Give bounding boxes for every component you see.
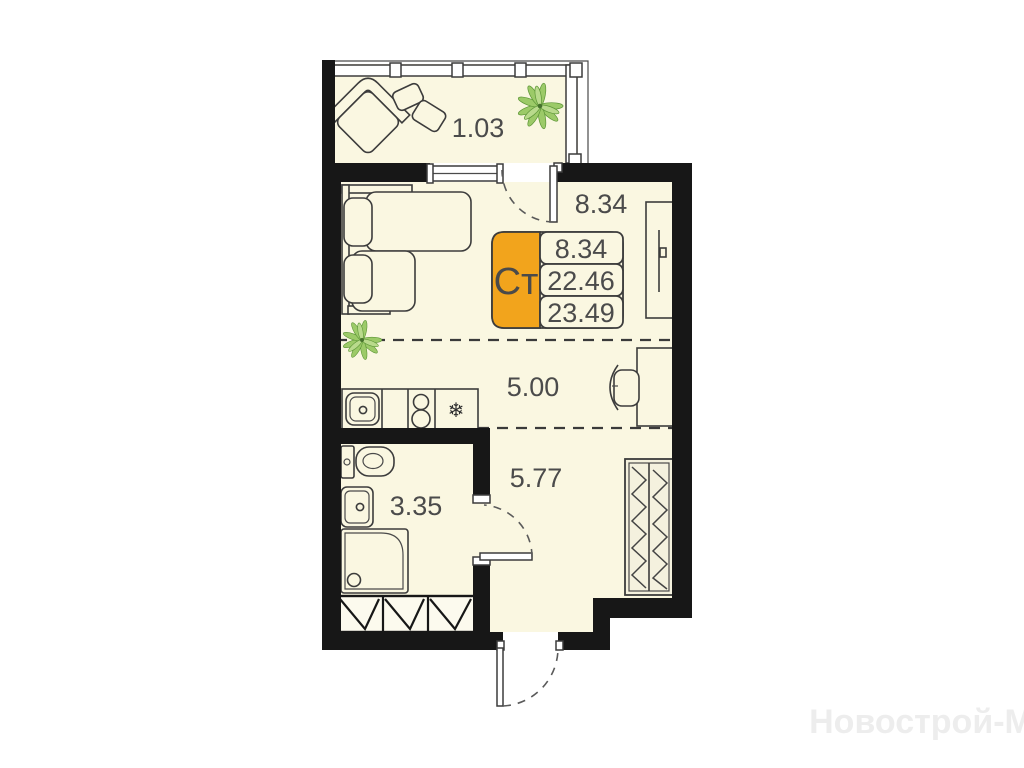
wardrobe-room xyxy=(646,202,673,318)
door-jamb xyxy=(473,495,490,503)
entry-door-swing xyxy=(503,648,558,706)
kitchen-area-label: 5.00 xyxy=(507,372,560,402)
unit-type-label: Ст xyxy=(494,261,539,303)
entry-opening xyxy=(503,632,558,650)
glazing-mullion xyxy=(390,63,401,77)
left-wall xyxy=(322,163,341,650)
bed-mattress-long xyxy=(366,192,471,251)
bathroom-door-leaf xyxy=(480,553,532,560)
toilet-bowl xyxy=(356,447,394,476)
shaft-hatch xyxy=(338,596,475,632)
unit-area-3: 23.49 xyxy=(547,298,615,328)
balcony-area-label: 1.03 xyxy=(452,113,505,143)
room-area-label: 8.34 xyxy=(575,189,628,219)
balcony-glazing-right xyxy=(566,65,577,163)
desk xyxy=(637,348,674,426)
glazing-mullion xyxy=(452,63,463,77)
unit-area-1: 8.34 xyxy=(555,234,608,264)
door-jamb xyxy=(556,641,563,650)
unit-info-card: Ст 8.34 22.46 23.49 xyxy=(492,232,623,328)
floorplan: 1.03 ❄ xyxy=(0,0,1024,768)
bed-pillow xyxy=(344,198,372,246)
shower-tray xyxy=(341,529,408,593)
top-right-wall xyxy=(556,163,692,182)
kitchen-sink xyxy=(346,393,379,425)
bathroom-right-wall-lower xyxy=(473,558,490,632)
entry-door xyxy=(497,641,563,706)
bed-pillow xyxy=(344,255,372,303)
wardrobe-hallway xyxy=(625,459,673,595)
toilet xyxy=(341,446,394,478)
glazing-corner-mullion xyxy=(570,63,582,77)
glazing-mullion xyxy=(515,63,526,77)
fridge-snowflake-icon: ❄ xyxy=(448,400,465,422)
balcony-door-leaf xyxy=(550,166,557,222)
unit-area-2: 22.46 xyxy=(547,266,615,296)
bathroom-area-label: 3.35 xyxy=(390,491,443,521)
bottom-wall xyxy=(322,632,610,650)
window-room-balcony xyxy=(427,164,503,183)
entry-door-leaf xyxy=(497,648,503,706)
kitchen-counter: ❄ xyxy=(342,389,478,429)
balcony-left-wall xyxy=(322,60,335,164)
bottom-right-wall xyxy=(610,598,692,618)
right-wall xyxy=(672,163,692,618)
desk-chair xyxy=(610,365,639,410)
bathroom-right-wall-upper xyxy=(473,444,490,502)
bathroom-sink xyxy=(341,487,373,527)
bathroom-top-wall xyxy=(335,428,490,444)
balcony-partition-wall xyxy=(335,163,430,182)
toilet-tank xyxy=(341,446,354,478)
hallway-area-label: 5.77 xyxy=(510,463,563,493)
watermark: Новострой-М xyxy=(809,703,1024,741)
